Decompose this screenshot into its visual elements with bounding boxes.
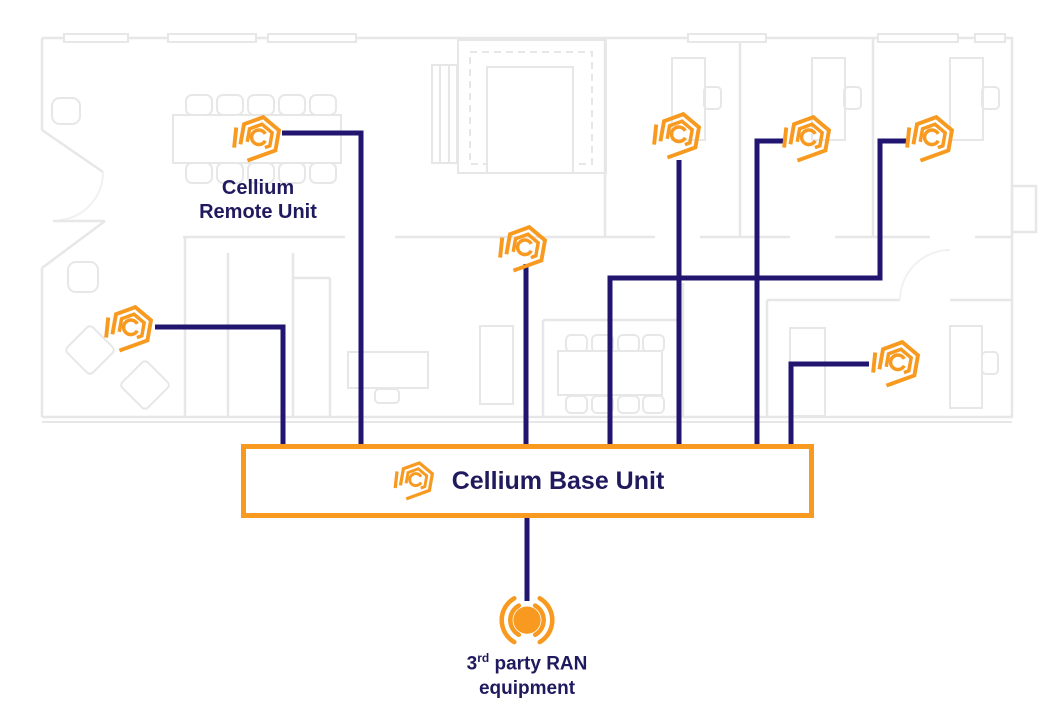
remote-unit-1 <box>229 110 287 168</box>
cellium-logo-icon <box>649 107 707 165</box>
remote-unit-4 <box>649 107 707 165</box>
ran-antenna-icon <box>486 592 568 652</box>
cable-remote-2 <box>155 327 283 447</box>
cellium-logo-icon <box>868 335 926 393</box>
remote-unit-6 <box>902 110 960 168</box>
cellium-logo-icon <box>101 300 159 358</box>
cable-remote-5 <box>757 141 784 447</box>
cellium-logo-icon <box>902 110 960 168</box>
ran-label-ordinal: rd <box>477 651 489 665</box>
cellium-logo-icon <box>779 110 837 168</box>
remote-unit-5 <box>779 110 837 168</box>
base-unit-box: Cellium Base Unit <box>241 444 814 518</box>
cellium-logo-icon <box>391 457 439 505</box>
remote-unit-2 <box>101 300 159 358</box>
cellium-logo-icon <box>495 220 553 278</box>
remote-unit-3 <box>495 220 553 278</box>
remote-unit-7 <box>868 335 926 393</box>
network-floorplan-diagram: Cellium Remote Unit Cellium Base Unit 3r… <box>0 0 1051 726</box>
remote-unit-label-line2: Remote Unit <box>133 200 383 224</box>
base-unit-label: Cellium Base Unit <box>452 467 665 496</box>
remote-unit-label: Cellium Remote Unit <box>133 176 383 225</box>
ran-label-line1: 3rd party RAN <box>427 651 627 676</box>
ran-equipment-label: 3rd party RAN equipment <box>427 651 627 701</box>
cable-remote-7 <box>791 364 869 447</box>
ran-label-line2: equipment <box>427 676 627 701</box>
remote-unit-label-line1: Cellium <box>133 176 383 200</box>
cellium-logo-icon <box>229 110 287 168</box>
